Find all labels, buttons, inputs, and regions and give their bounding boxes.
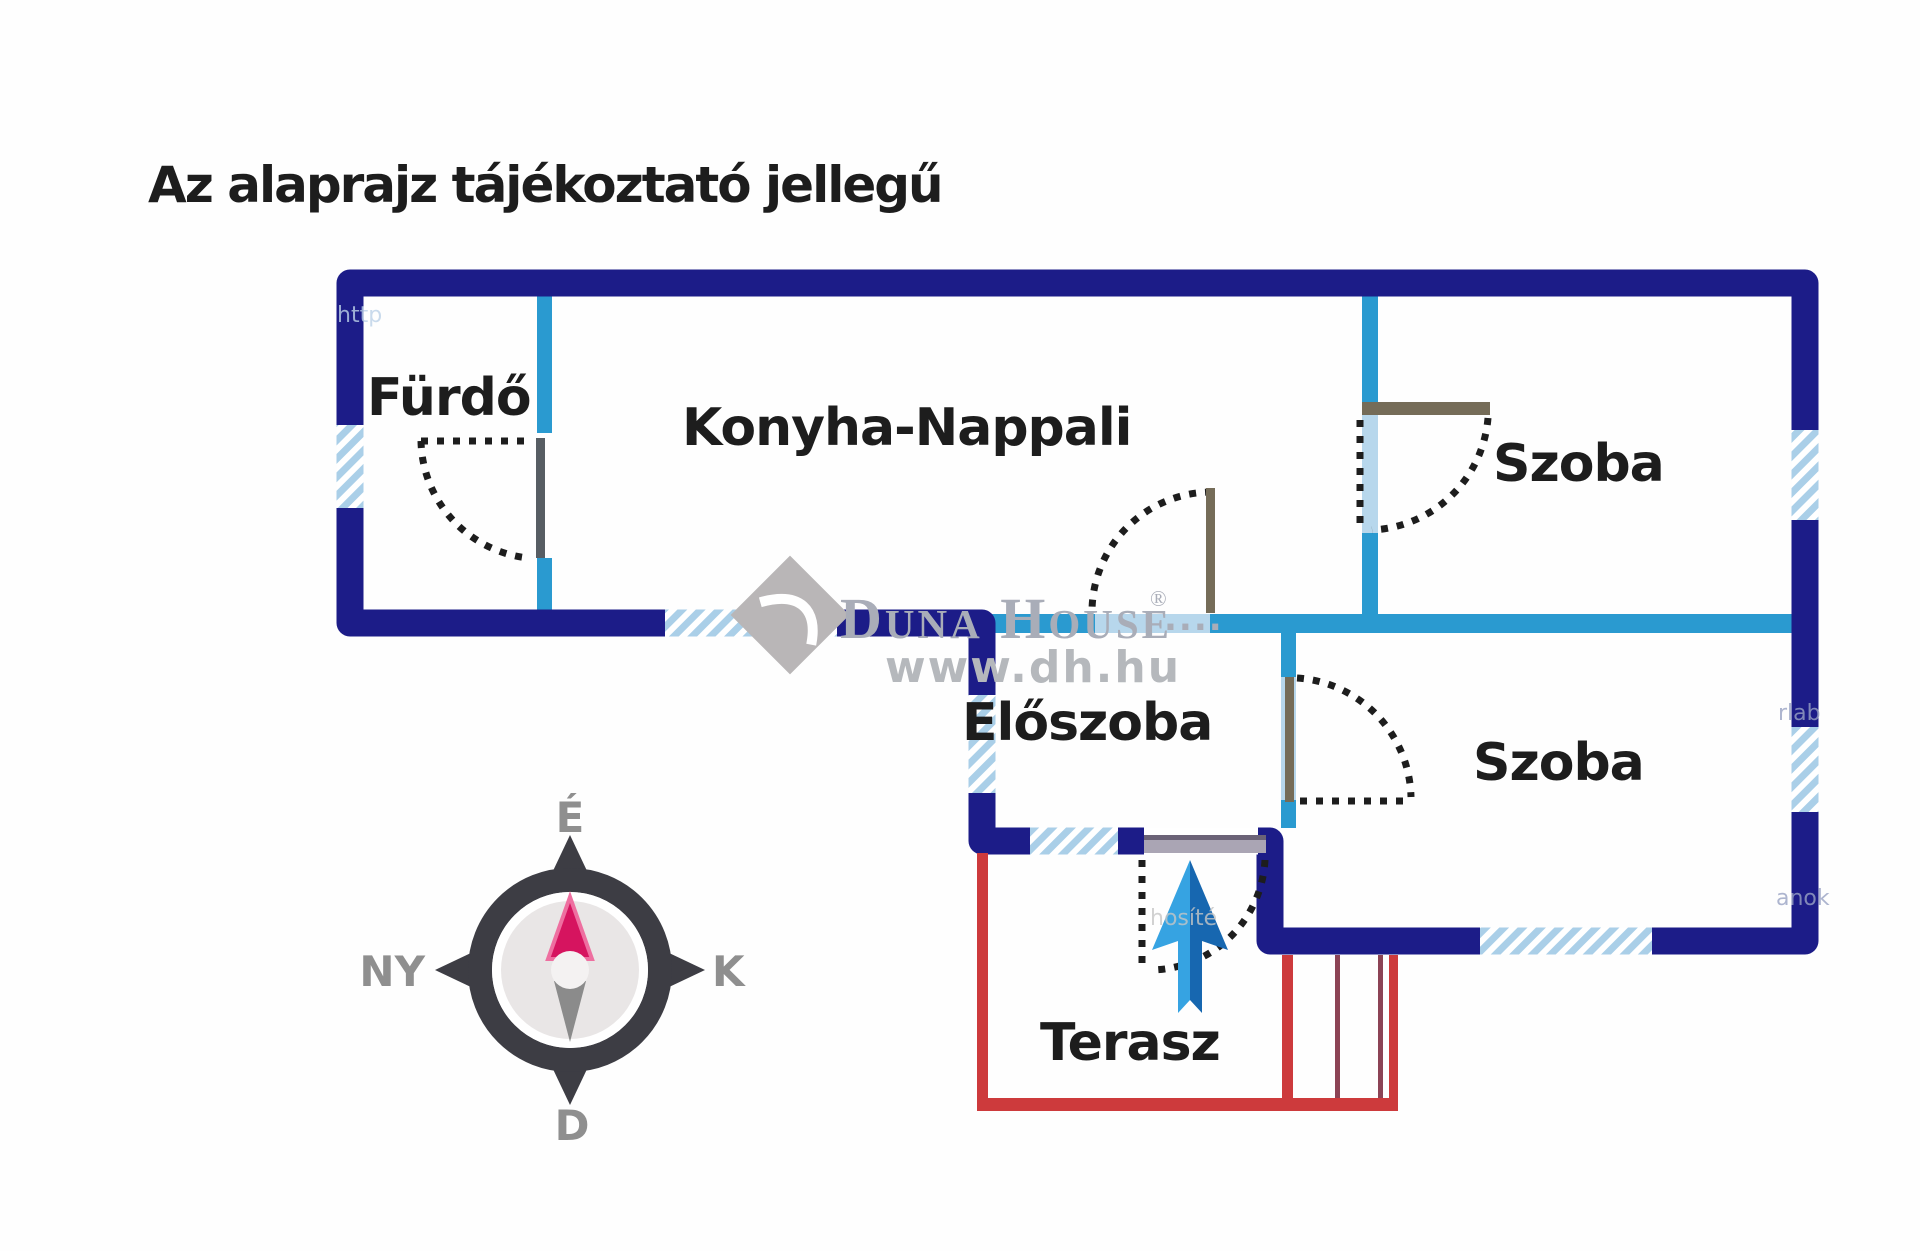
entrance-threshold-edge: [1144, 835, 1266, 840]
door-opening-szoba-top: [1362, 415, 1378, 533]
compass-hub: [551, 951, 589, 989]
watermark-url: www.dh.hu: [885, 642, 1181, 693]
compass-label-south: D: [555, 1101, 590, 1150]
furdo-door-leaf: [536, 438, 545, 558]
watermark-fragment-anok: anok: [1776, 886, 1830, 911]
stair-tread-line-2: [1378, 955, 1383, 1098]
terrace-wall-bottom: [977, 1098, 1398, 1111]
szoba-bottom-door-leaf: [1285, 677, 1294, 802]
page-title: Az alaprajz tájékoztató jellegű: [148, 156, 942, 214]
window-szoba-bottom: [1480, 928, 1652, 955]
watermark-fragment-rlab: rlab: [1778, 701, 1821, 726]
window-eloszoba-bottom: [1030, 828, 1118, 855]
compass-label-north: É: [556, 792, 585, 842]
stair-tread-line-1: [1335, 955, 1340, 1098]
terrace-wall-right: [1282, 955, 1293, 1105]
wall-szoba-top-divider-upper: [1362, 296, 1378, 403]
wall-szoba-top-divider-lower: [1362, 533, 1378, 615]
wall-eloszoba-divider-lower: [1281, 800, 1296, 828]
room-label-szoba-bottom: Szoba: [1473, 733, 1644, 793]
compass-label-west: NY: [359, 947, 425, 996]
wall-eloszoba-divider-upper: [1281, 633, 1296, 677]
floor-plan-canvas: Az alaprajz tájékoztató jellegű: [0, 0, 1920, 1251]
terrace-wall-left: [977, 853, 988, 1110]
watermark-fragment-http: http: [337, 303, 382, 328]
room-label-konyha-nappali: Konyha-Nappali: [682, 398, 1132, 458]
room-label-eloszoba: Előszoba: [962, 693, 1212, 753]
wall-furdo-divider-bottom: [537, 558, 552, 613]
watermark-trailing-dots: ....: [1164, 599, 1224, 639]
window-szoba-bottom-right: [1792, 727, 1819, 812]
room-label-furdo: Fürdő: [367, 368, 531, 428]
room-label-szoba-top: Szoba: [1493, 434, 1664, 494]
watermark-fragment-hosite: hosíté: [1150, 906, 1217, 931]
wall-furdo-divider-top: [537, 296, 552, 433]
compass-label-east: K: [712, 947, 746, 996]
room-label-terasz: Terasz: [1040, 1013, 1220, 1073]
szoba-top-door-leaf: [1362, 402, 1490, 415]
window-szoba-top-right: [1792, 430, 1819, 520]
stairs-right-edge: [1389, 955, 1398, 1105]
window-furdo-left: [337, 425, 364, 508]
konyha-door-leaf: [1206, 488, 1215, 613]
